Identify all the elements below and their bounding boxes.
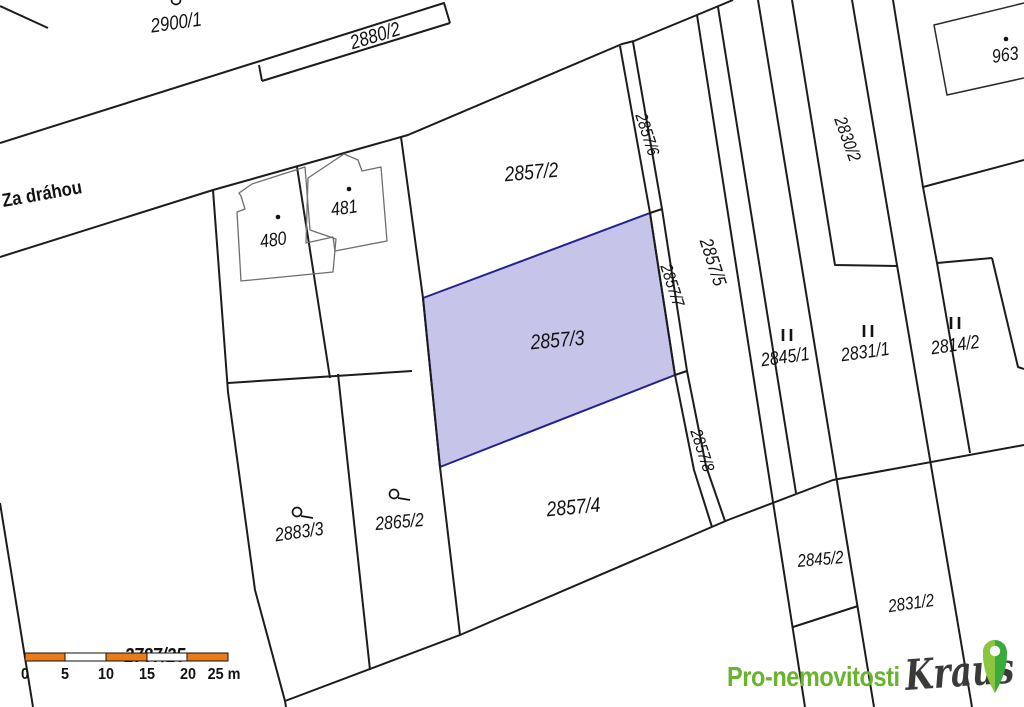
boundary-2814-right (992, 258, 1024, 369)
brand-logo-text: Pro-nemovitosti (727, 662, 900, 692)
scale-bar-segment (65, 653, 106, 661)
scale-tick-20: 20 (180, 665, 196, 683)
meadow-icon (783, 329, 791, 341)
parcel-label-2845-1: 2845/1 (759, 342, 811, 370)
building-label-963: 963 (990, 42, 1020, 67)
boundary-2814-left (893, 0, 970, 453)
parcel-label-2845-2: 2845/2 (796, 547, 845, 572)
parcel-label-2857-2: 2857/2 (503, 158, 560, 187)
scale-tick-5: 5 (61, 665, 70, 683)
meadow-icon (864, 325, 872, 337)
boundary-strip-2880-left (259, 65, 262, 81)
building-480-point (276, 215, 281, 220)
parcel-label-2830-2: 2830/2 (830, 113, 865, 164)
parcel-label-2831-1: 2831/1 (839, 337, 891, 365)
scale-tick-10: 10 (98, 665, 114, 683)
building-963-point (1004, 37, 1009, 42)
boundary-lane-tick-1 (650, 209, 662, 213)
parcel-label-2814-2: 2814/2 (929, 330, 981, 358)
scale-tick-25m: 25 m (208, 665, 241, 683)
boundary-thin-strip-right (718, 7, 796, 493)
parcel-label-2883-3: 2883/3 (273, 517, 325, 545)
scale-tick-15: 15 (139, 665, 156, 683)
scale-bar-segment (25, 653, 65, 661)
scale-bar: 0 5 10 15 20 25 m (21, 653, 240, 683)
cadastral-map-page: 2900/1 2880/2 Za dráhou 480 481 2857/2 2… (0, 0, 1024, 707)
parcel-label-2831-2: 2831/2 (886, 590, 936, 617)
parcel-label-2857-3: 2857/3 (529, 326, 586, 355)
building-label-480: 480 (258, 227, 288, 252)
boundary-lane-tick-2 (675, 371, 687, 375)
meadow-icon (951, 317, 959, 329)
boundary-block-left (213, 190, 286, 707)
parcel-label-2900-1: 2900/1 (148, 7, 203, 37)
orchard-icon (390, 490, 411, 501)
parcel-label-2857-5: 2857/5 (695, 235, 731, 289)
boundary-top-left-corner (0, 6, 48, 28)
boundary-2845-2-subdivider (793, 606, 858, 627)
cadastral-map-canvas[interactable]: 2900/1 2880/2 Za dráhou 480 481 2857/2 2… (0, 0, 1024, 707)
scale-tick-0: 0 (21, 665, 29, 683)
building-481-point (347, 187, 352, 192)
orchard-icon (293, 508, 314, 519)
scale-bar-segment (147, 653, 187, 661)
brand-logo: Pro-nemovitosti Kraus (727, 640, 1016, 700)
partial-symbol-top-edge (172, 0, 181, 5)
parcel-label-2880-2: 2880/2 (346, 17, 403, 54)
boundary-2814-top (937, 258, 992, 263)
parcel-label-2865-2: 2865/2 (373, 509, 425, 535)
building-480-outline (237, 167, 336, 281)
scale-bar-segment (106, 653, 147, 661)
boundary-below-963 (923, 160, 1024, 187)
boundary-2883-2865-divider (338, 374, 370, 670)
boundary-block-divider (228, 371, 412, 383)
building-label-481: 481 (329, 195, 358, 220)
parcel-label-2857-4: 2857/4 (545, 493, 602, 522)
street-name-label: Za dráhou (0, 176, 83, 211)
scale-bar-segment (187, 653, 228, 661)
